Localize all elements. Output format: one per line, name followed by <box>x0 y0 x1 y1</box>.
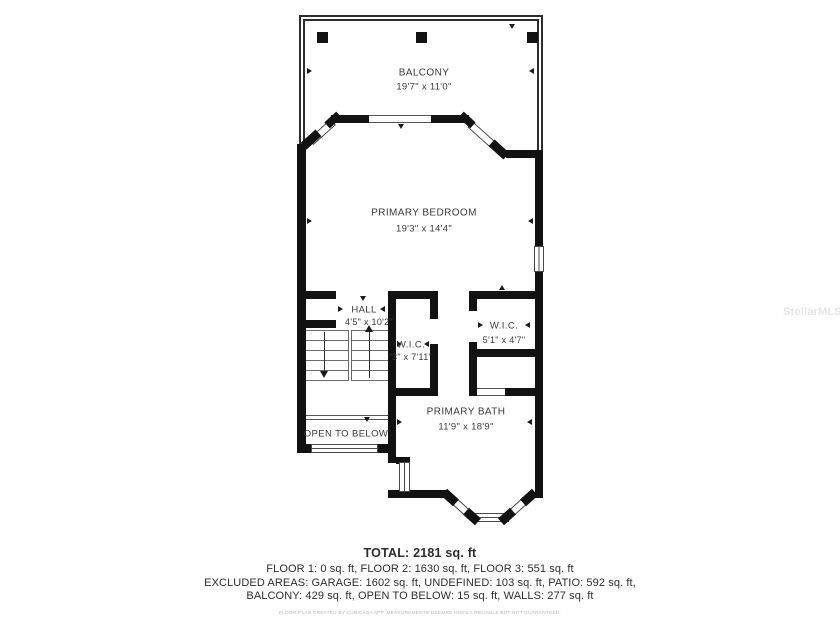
room-label-wic-right: W.I.C. <box>490 321 518 332</box>
area-summary: TOTAL: 2181 sq. ft FLOOR 1: 0 sq. ft, FL… <box>0 546 840 616</box>
window <box>399 462 410 492</box>
dimension-tick <box>527 419 532 425</box>
open-to-below-edge <box>306 415 388 420</box>
dimension-tick <box>397 419 402 425</box>
stair-down-arrow-head <box>320 371 328 378</box>
room-label-primary-bath: PRIMARY BATH <box>427 407 506 418</box>
disclaimer: FLOOR PLAN CREATED BY CUBICASA APP. MEAS… <box>0 611 840 616</box>
room-dim-balcony: 19'7" x 11'0" <box>396 82 451 93</box>
dimension-tick <box>528 218 533 224</box>
door-opening <box>476 388 506 396</box>
room-dim-primary-bath: 11'9" x 18'9" <box>438 422 493 433</box>
dimension-tick <box>398 124 404 129</box>
balcony-door-opening <box>369 115 431 123</box>
wall <box>388 490 447 498</box>
stair-flight-right <box>351 330 390 381</box>
wall <box>535 155 543 498</box>
wall <box>303 320 336 328</box>
room-dim-primary-bedroom: 19'3" x 14'4" <box>396 224 452 235</box>
summary-total: TOTAL: 2181 sq. ft <box>0 546 840 560</box>
balcony-post <box>317 32 328 43</box>
room-label-primary-bedroom: PRIMARY BEDROOM <box>371 208 477 219</box>
watermark: StellarMLS <box>783 306 840 318</box>
wall <box>430 291 438 319</box>
wall <box>469 349 543 357</box>
wall <box>388 388 438 396</box>
wall <box>463 508 481 525</box>
floor-plan-canvas: BALCONY 19'7" x 11'0" PRIMARY BEDROOM 19… <box>0 0 840 630</box>
dimension-tick <box>307 68 312 74</box>
dimension-tick <box>307 218 312 224</box>
dimension-tick <box>364 417 370 422</box>
dimension-tick <box>478 322 483 328</box>
room-dim-wic-middle: '3" x 7'11" <box>390 352 432 362</box>
dimension-tick <box>499 285 505 290</box>
window <box>311 444 378 453</box>
dimension-tick <box>509 24 515 29</box>
balcony-post <box>527 32 538 43</box>
wall <box>297 291 336 299</box>
wall <box>469 291 543 299</box>
room-dim-wic-right: 5'1" x 4'7" <box>483 335 526 345</box>
room-label-open-to-below: OPEN TO BELOW <box>304 429 389 440</box>
room-label-balcony: BALCONY <box>399 68 450 79</box>
dimension-tick <box>360 296 366 301</box>
room-dim-hall: 4'5" x 10'2" <box>345 317 393 327</box>
dimension-tick <box>338 306 343 312</box>
dimension-tick <box>529 68 534 74</box>
summary-floors: FLOOR 1: 0 sq. ft, FLOOR 2: 1630 sq. ft,… <box>0 563 840 577</box>
room-label-wic-middle: W.I.C. <box>397 340 425 351</box>
stair-up-arrow <box>369 331 370 378</box>
stair-down-arrow <box>324 332 325 372</box>
dimension-tick <box>380 306 385 312</box>
summary-excluded-2: BALCONY: 429 sq. ft, OPEN TO BELOW: 15 s… <box>0 590 840 604</box>
room-label-hall: HALL <box>351 305 376 316</box>
wall <box>469 291 477 311</box>
wall <box>505 388 543 396</box>
balcony-post <box>416 32 427 43</box>
window <box>534 246 544 272</box>
dimension-tick <box>525 322 530 328</box>
summary-excluded-1: EXCLUDED AREAS: GARAGE: 1602 sq. ft, UND… <box>0 577 840 591</box>
